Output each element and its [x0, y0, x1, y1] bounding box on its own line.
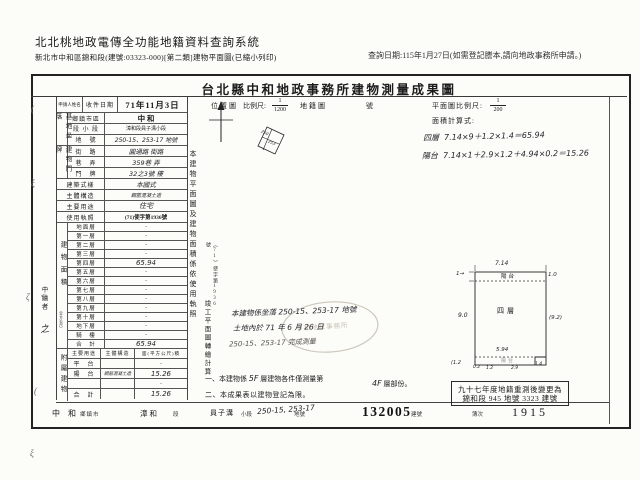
- note1-handwritten-floors: 5F: [249, 374, 259, 383]
- floor-label: 第二層: [68, 241, 104, 249]
- bottom-town-label: 鄉鎮市: [80, 410, 100, 418]
- floor-label: 地面層: [68, 223, 104, 231]
- annex-cell: [100, 379, 134, 388]
- floor-value: ·: [104, 286, 187, 294]
- usage-label: 主要用途: [57, 201, 104, 211]
- floor-label: 第十層: [68, 313, 104, 321]
- license-label: 使用執照: [57, 212, 104, 222]
- plan-top-dimension: 7.14: [495, 260, 508, 267]
- stray-mark: ξ: [30, 448, 34, 458]
- annex-group: 附屬建物 主要用途 主體構造 面(平方公尺)積 平 台 · 陽 台 鋼筋混凝土造…: [57, 349, 187, 401]
- formula1-expression: 7.14×9＋1.2×1.4＝65.94: [444, 130, 545, 142]
- site-group: 基地坐落 鄉鎮市區 中 和 段 小 段 漳和段員子溝小段 地 號 250-15、…: [57, 113, 187, 146]
- bottom-subsection: 員子溝: [210, 408, 234, 418]
- floor-label: 合 計: [68, 340, 104, 348]
- printed-note-2: 二、本成果表以建物登記為限。: [205, 390, 310, 400]
- annex-cell: 陽 台: [68, 369, 100, 378]
- plan-scale-numerator: 1: [497, 98, 500, 104]
- annex-header: 面(平方公尺)積: [134, 349, 187, 358]
- building-info-table: 申請人姓名 收件日期 71年11月3日 基地坐落 鄉鎮市區 中 和 段 小 段 …: [56, 97, 188, 400]
- transcription-note-vertical: 本建物平面圖及建物面積係依使用執照: [188, 150, 198, 328]
- address-row-value: 圓通路 街路: [104, 146, 187, 156]
- query-date: 查詢日期:115年1月27日(如需登記謄本,請向地政事務所申請。): [368, 50, 581, 61]
- floor-value: ·: [104, 241, 187, 249]
- received-label: 收件日期: [83, 97, 117, 112]
- annex-cell: 平 台: [68, 359, 100, 368]
- plan-bottom-dimension: 5.94: [496, 347, 508, 353]
- address-row-label: 門 牌: [68, 168, 104, 178]
- site-row-value: 250-15、253-17 地號: [104, 135, 187, 145]
- plan-bottom-num: 2.9: [511, 366, 518, 371]
- document-subtitle: 新北市中和區錦和段(建號:03323-000)[第二類]建物平面圖(已縮小列印): [35, 52, 277, 63]
- stray-mark: ξ: [31, 178, 35, 188]
- area-unit-label: （平方公尺）: [60, 309, 65, 330]
- formula2-name: 陽台: [422, 151, 438, 160]
- floor-value: 65.94: [104, 340, 187, 348]
- floor-value: ·: [104, 232, 187, 240]
- annex-group-label: 附屬建物: [57, 354, 67, 396]
- formula2-expression: 7.14×1＋2.9×1.2＋4.94×0.2＝15.26: [443, 149, 589, 161]
- bottom-parcel-label: 地號: [294, 410, 305, 418]
- floor-value: ·: [104, 277, 187, 285]
- applicant-label: 申請人姓名: [57, 97, 83, 112]
- bottom-book-label: 簿次: [472, 410, 483, 418]
- floor-label: 第九層: [68, 304, 104, 312]
- license-note-vertical: （71）使字第1936號: [204, 242, 218, 308]
- formula1-name: 四層: [423, 133, 439, 142]
- bottom-building-no-label: 建號: [411, 410, 422, 418]
- plan-bottom-strip-label: 陽台: [501, 357, 515, 364]
- annex-cell: 合 計: [68, 389, 100, 399]
- note1-lead: 一、本建物係: [205, 375, 247, 383]
- style-label: 建築式樣: [57, 179, 104, 189]
- note1-tail: 層部份。: [383, 380, 411, 388]
- cadastral-map-label: 地籍圖: [300, 101, 327, 111]
- floor-value: ·: [104, 304, 187, 312]
- floor-label: 第六層: [68, 277, 104, 285]
- resurvey-line2: 錦和段 945 地號 3323 建號: [462, 394, 557, 403]
- stray-mark: (: [31, 104, 34, 114]
- resurvey-change-box: 九十七年度地籍重測後變更為 錦和段 945 地號 3323 建號: [451, 381, 569, 406]
- hand-note-line2: 土地內於 71 年 6 月 26 日: [233, 321, 324, 334]
- floor-label: 第七層: [68, 286, 104, 294]
- plan-bottom-num: 0.2: [473, 365, 480, 370]
- floor-label: 騎 樓: [68, 331, 104, 339]
- scale-denominator: 1200: [274, 107, 286, 113]
- plan-topleft-dimension: 1→: [456, 271, 464, 277]
- floor-value: ·: [104, 322, 187, 330]
- bottom-section-label: 段: [173, 410, 179, 418]
- plan-bottom-num: 1.2: [486, 366, 493, 371]
- site-row-label: 段 小 段: [68, 124, 104, 134]
- license-value: (71)使字第1936號: [104, 212, 187, 222]
- site-row-value: 中 和: [104, 113, 187, 123]
- resurvey-line1: 九十七年度地籍重測後變更為: [458, 385, 562, 394]
- floor-value: ·: [104, 268, 187, 276]
- plan-left-dimension: 9.0: [458, 312, 468, 319]
- floor-label: 第三層: [68, 250, 104, 258]
- address-row-label: 巷 弄: [68, 157, 104, 167]
- plan-right-dimension: (9.2): [549, 315, 562, 321]
- north-arrow-icon: [205, 98, 239, 146]
- scanned-survey-document: 北北桃地政電傳全功能地籍資料查詢系統 新北市中和區錦和段(建號:03323-00…: [0, 0, 640, 480]
- annex-cell: ·: [134, 379, 187, 388]
- floor-value: ·: [104, 331, 187, 339]
- bottom-registration-number: 132005: [362, 404, 412, 420]
- location-scale-label: 比例尺:: [243, 101, 266, 111]
- stray-mark: <: [40, 291, 46, 301]
- location-scale-fraction: 1 1200: [272, 98, 288, 113]
- floor-value: ·: [104, 313, 187, 321]
- floor-value: ·: [104, 250, 187, 258]
- floor-label: 第八層: [68, 295, 104, 303]
- bottom-subsection-label: 小段: [241, 410, 252, 418]
- site-row-label: 地 號: [68, 135, 104, 145]
- annex-cell: [100, 389, 134, 399]
- printed-note-1-cont: 4F 層部份。: [372, 379, 411, 389]
- floor-value: ·: [104, 223, 187, 231]
- bottom-book-number: 1915: [512, 405, 548, 420]
- annex-cell: [100, 359, 134, 368]
- stray-mark: ζ: [26, 292, 30, 302]
- site-row-value: 漳和段員子溝小段: [104, 124, 187, 134]
- site-row-label: 鄉鎮市區: [68, 113, 104, 123]
- structure-label: 主體構造: [57, 190, 104, 200]
- bottom-section: 漳和: [140, 408, 159, 419]
- structure-value: 鋼筋混凝土造: [104, 190, 187, 200]
- area-formula-label: 面積計算式:: [432, 116, 475, 126]
- printed-note-1: 一、本建物係 5F 層建物各件僅測量第: [205, 374, 323, 384]
- floor-label: 第四層: [68, 259, 104, 267]
- plan-scale-denominator: 200: [494, 107, 503, 113]
- floor-label: 第五層: [68, 268, 104, 276]
- floor-label: 地下層: [68, 322, 104, 330]
- address-row-label: 街 路: [68, 146, 104, 156]
- plan-scale-label: 平面圖比例尺:: [432, 101, 483, 111]
- system-title: 北北桃地政電傳全功能地籍資料查詢系統: [35, 34, 260, 50]
- plan-topright-dimension: 1.0: [548, 272, 557, 278]
- plan-top-strip-label: 陽台: [501, 272, 516, 280]
- address-row-value: 32之3號 樓: [104, 168, 187, 178]
- plan-center-label: 四層: [497, 306, 517, 316]
- plan-scale-fraction: 1 200: [490, 98, 506, 113]
- usage-value: 住宅: [104, 201, 187, 211]
- bottom-town: 中 和: [52, 408, 79, 419]
- floor-label: 第一層: [68, 232, 104, 240]
- annex-cell: 鋼筋混凝土造: [100, 369, 134, 378]
- annex-cell: ·: [134, 359, 187, 368]
- annex-cell: 15.26: [134, 369, 187, 378]
- area-group: 建物面積 （平方公尺） 地面層· 第一層· 第二層· 第三層· 第四層65.94…: [57, 223, 187, 349]
- floor-value: ·: [104, 295, 187, 303]
- note1-handwritten-floor-no: 4F: [372, 379, 382, 388]
- inner-right-rule: [609, 97, 610, 424]
- annex-cell: 15.26: [134, 389, 187, 399]
- address-row-value: 359巷 弄: [104, 157, 187, 167]
- received-date: 71年11月3日: [117, 97, 187, 112]
- scale-numerator: 1: [279, 98, 282, 104]
- plan-bottom-num: 1.4: [535, 362, 542, 367]
- annex-header: 主體構造: [100, 349, 134, 358]
- annex-cell: [68, 379, 100, 388]
- floor-value: 65.94: [104, 259, 187, 267]
- stray-mark: (: [34, 386, 37, 396]
- address-group: 建物門牌 街 路 圓通路 街路 巷 弄 359巷 弄 門 牌 32之3號 樓: [57, 146, 187, 179]
- note1-mid: 層建物各件僅測量第: [260, 375, 323, 383]
- area-group-label: 建物面積: [57, 241, 67, 291]
- style-value: 本國式: [104, 179, 187, 189]
- annex-header: 主要用途: [68, 349, 100, 358]
- plan-outside-left-num: (1.2: [451, 360, 461, 366]
- cadastral-no-label: 號: [366, 101, 373, 111]
